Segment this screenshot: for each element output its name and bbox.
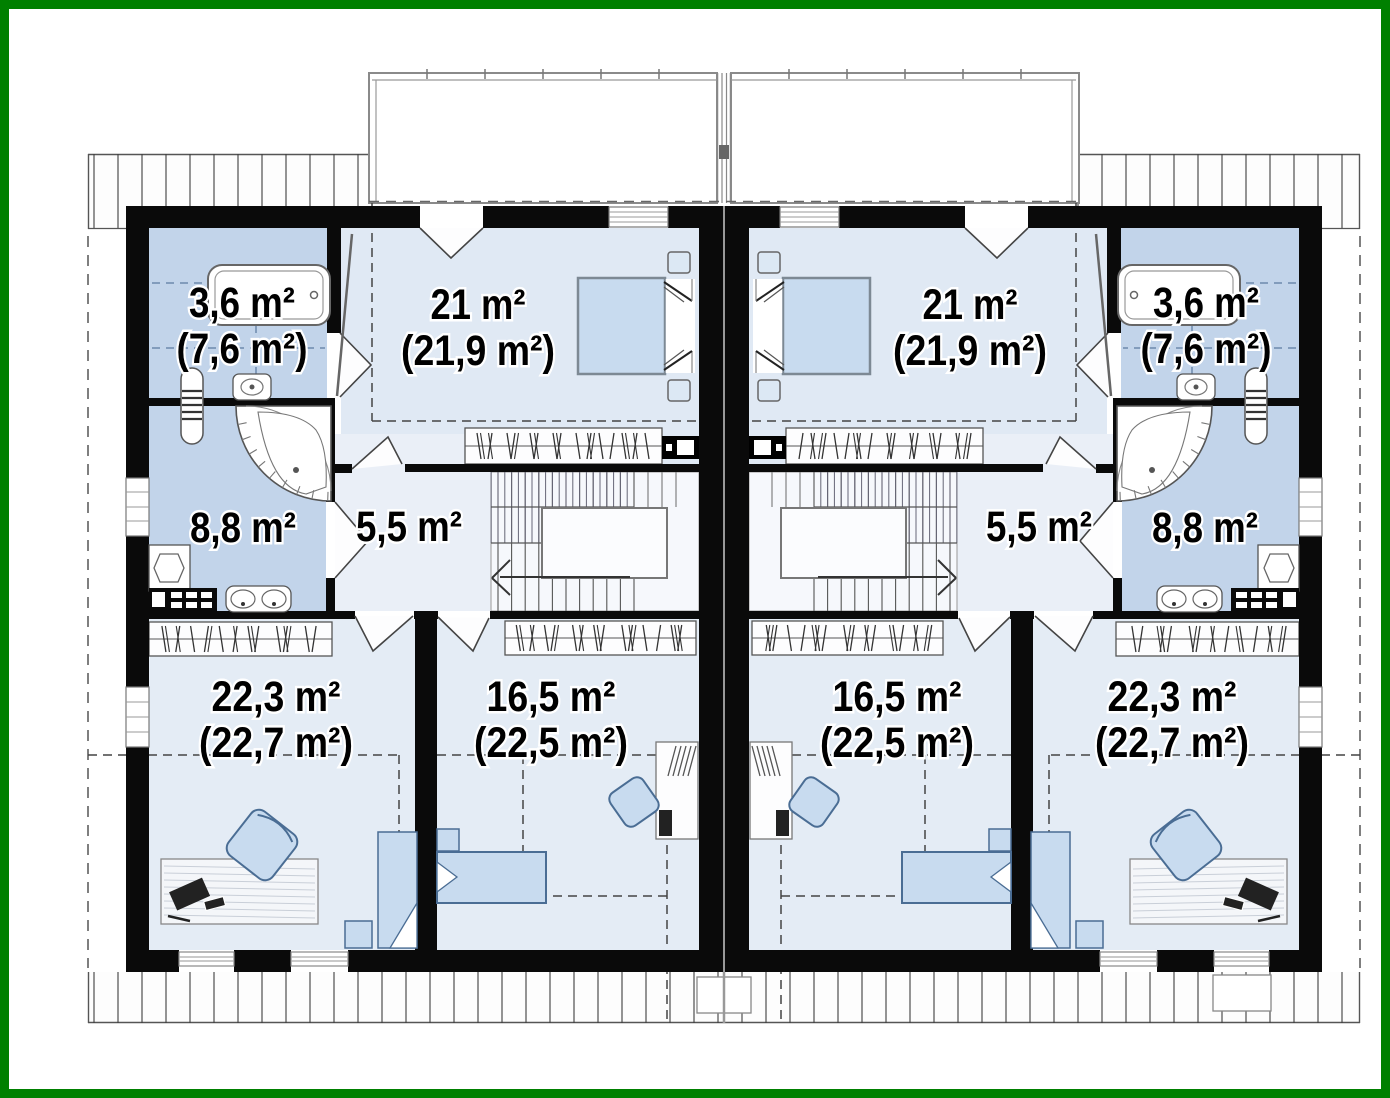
svg-text:(21,9 m²): (21,9 m²) xyxy=(401,327,555,375)
svg-text:16,5 m²: 16,5 m² xyxy=(833,673,962,721)
svg-text:(22,7 m²): (22,7 m²) xyxy=(199,719,353,767)
svg-text:(7,6 m²): (7,6 m²) xyxy=(177,325,308,373)
svg-text:8,8 m²: 8,8 m² xyxy=(190,504,296,552)
svg-text:(22,5 m²): (22,5 m²) xyxy=(820,719,974,767)
svg-text:22,3 m²: 22,3 m² xyxy=(212,673,341,721)
svg-text:3,6 m²: 3,6 m² xyxy=(189,279,295,327)
svg-text:3,6 m²: 3,6 m² xyxy=(1153,279,1259,327)
svg-text:22,3 m²: 22,3 m² xyxy=(1108,673,1237,721)
svg-text:5,5 m²: 5,5 m² xyxy=(986,503,1092,551)
svg-text:(22,5 m²): (22,5 m²) xyxy=(474,719,628,767)
svg-text:21 m²: 21 m² xyxy=(923,281,1018,329)
svg-text:(21,9 m²): (21,9 m²) xyxy=(893,327,1047,375)
svg-text:16,5 m²: 16,5 m² xyxy=(487,673,616,721)
svg-text:8,8 m²: 8,8 m² xyxy=(1152,504,1258,552)
svg-text:(22,7 m²): (22,7 m²) xyxy=(1095,719,1249,767)
svg-text:(7,6 m²): (7,6 m²) xyxy=(1141,325,1272,373)
svg-text:21 m²: 21 m² xyxy=(431,281,526,329)
svg-text:5,5 m²: 5,5 m² xyxy=(356,503,462,551)
